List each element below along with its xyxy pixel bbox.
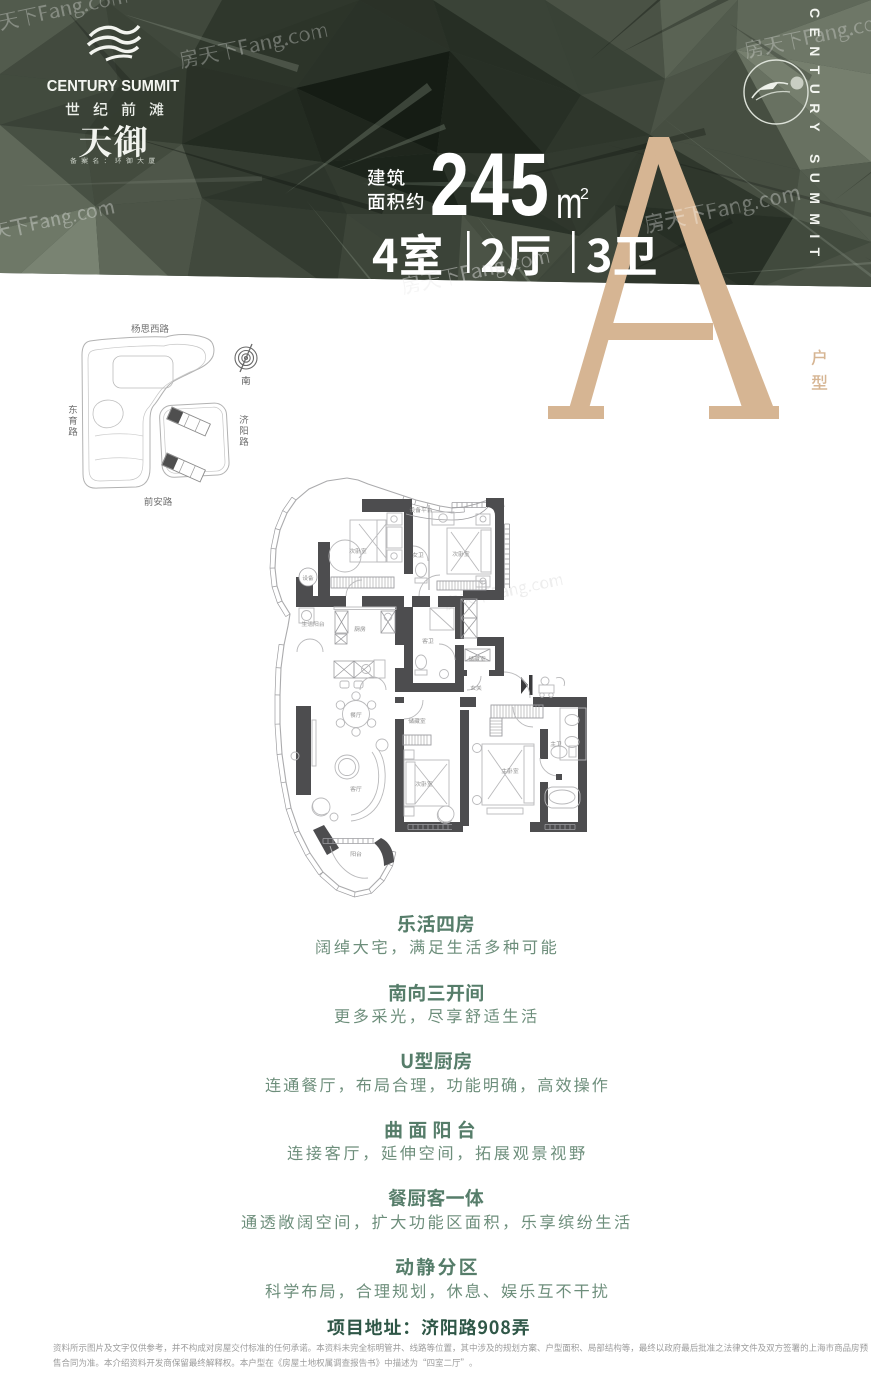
svg-text:2: 2 [580,186,589,203]
svg-text:245: 245 [430,134,550,234]
svg-text:m: m [556,179,582,228]
